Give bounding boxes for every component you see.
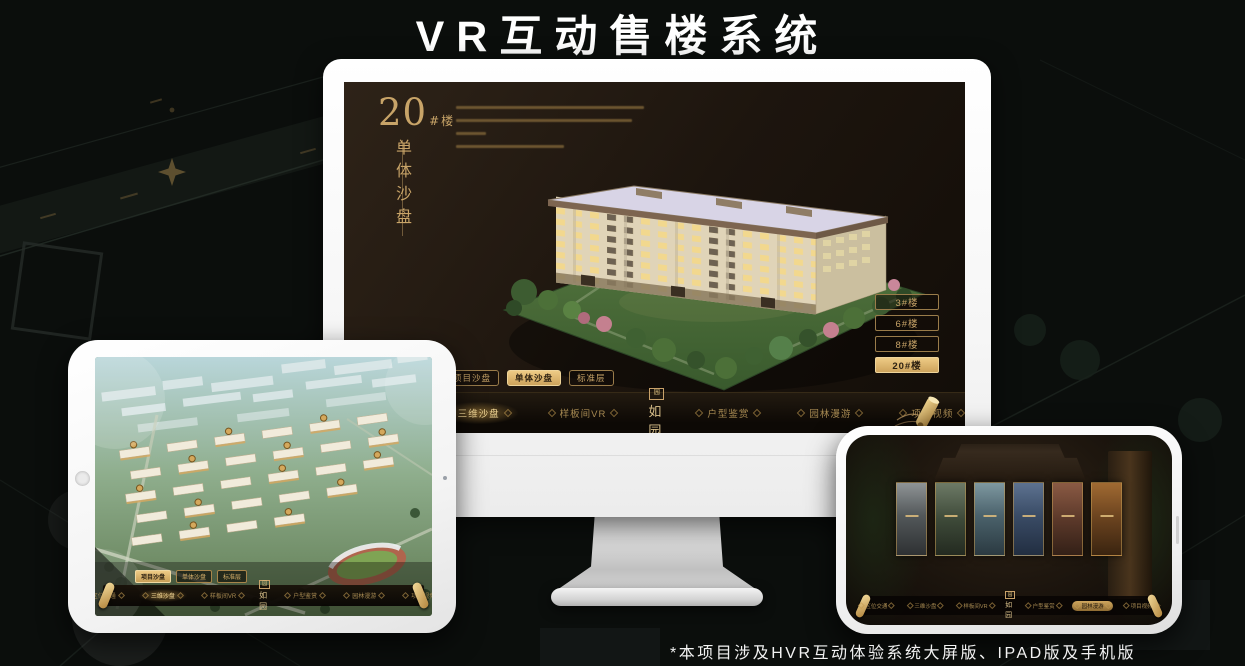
nav-label: 样板间VR bbox=[963, 602, 987, 610]
nav-label: 户型鉴赏 bbox=[1033, 602, 1055, 610]
panel-caption-mark bbox=[983, 515, 996, 517]
nav-item-showroom-vr[interactable]: 样板间VR bbox=[198, 589, 248, 602]
brand-logo: 园如园 bbox=[1005, 591, 1015, 620]
diamond-ornament-icon bbox=[118, 592, 125, 599]
nav-item-floorplans[interactable]: 户型鉴赏 bbox=[281, 589, 329, 602]
tablet-device: 项目沙盘 单体沙盘 标准层 区位交通 三维沙盘 样板间VR 园如园 户型鉴赏 园… bbox=[68, 340, 456, 633]
diamond-ornament-icon bbox=[177, 592, 184, 599]
diamond-ornament-icon bbox=[797, 409, 805, 417]
nav-item-showroom-vr[interactable]: 样板间VR bbox=[542, 402, 625, 424]
diamond-ornament-icon bbox=[957, 409, 965, 417]
diamond-ornament-icon bbox=[1123, 602, 1129, 608]
diamond-ornament-icon bbox=[989, 602, 995, 608]
poster: VR互动售楼系统 20#楼 单体沙盘 bbox=[0, 0, 1245, 666]
nav-item-garden-tour[interactable]: 园林漫游 bbox=[791, 402, 869, 424]
floor-button-8[interactable]: 8#楼 bbox=[875, 336, 939, 352]
logo-seal-icon: 园 bbox=[649, 388, 664, 400]
gate-silhouette bbox=[934, 439, 1086, 481]
scene-panel[interactable] bbox=[896, 482, 927, 556]
sandbox-subtabs: 项目沙盘 单体沙盘 标准层 bbox=[445, 370, 614, 386]
tablet-nav-overlay: 项目沙盘 单体沙盘 标准层 区位交通 三维沙盘 样板间VR 园如园 户型鉴赏 园… bbox=[103, 570, 424, 606]
panel-caption-mark bbox=[1061, 515, 1074, 517]
monitor-stand-neck bbox=[557, 511, 757, 595]
scene-panel[interactable] bbox=[1091, 482, 1122, 556]
diamond-ornament-icon bbox=[284, 592, 291, 599]
diamond-ornament-icon bbox=[695, 409, 703, 417]
description-text-line bbox=[456, 106, 644, 109]
phone-navbar: 区位交通 三维沙盘 样板间VR 园如园 户型鉴赏 园林漫游 项目视频 bbox=[862, 596, 1156, 615]
nav-item-showroom-vr[interactable]: 样板间VR bbox=[954, 601, 997, 611]
subtab-single-sandbox[interactable]: 单体沙盘 bbox=[176, 570, 212, 583]
diamond-ornament-icon bbox=[1074, 602, 1080, 608]
subtab-standard-floor[interactable]: 标准层 bbox=[217, 570, 247, 583]
nav-item-3d-sandbox[interactable]: 三维沙盘 bbox=[139, 589, 187, 602]
diamond-ornament-icon bbox=[201, 592, 208, 599]
description-text-line bbox=[456, 132, 486, 135]
panel-caption-mark bbox=[905, 515, 918, 517]
subtab-standard-floor[interactable]: 标准层 bbox=[569, 370, 614, 386]
nav-label: 户型鉴赏 bbox=[707, 406, 749, 420]
nav-item-floorplans[interactable]: 户型鉴赏 bbox=[1023, 601, 1064, 611]
description-text-line bbox=[456, 119, 632, 122]
brand-logo: 园如园 bbox=[259, 580, 270, 612]
diamond-ornament-icon bbox=[888, 602, 894, 608]
tablet-navbar: 区位交通 三维沙盘 样板间VR 园如园 户型鉴赏 园林漫游 项目视频 bbox=[103, 585, 424, 606]
floor-button-3[interactable]: 3#楼 bbox=[875, 294, 939, 310]
diamond-ornament-icon bbox=[238, 592, 245, 599]
brand-logo: 园如园 bbox=[648, 388, 665, 434]
diamond-ornament-icon bbox=[378, 592, 385, 599]
unit-suffix-text: #楼 bbox=[429, 114, 455, 128]
phone-device: 区位交通 三维沙盘 样板间VR 园如园 户型鉴赏 园林漫游 项目视频 bbox=[836, 426, 1182, 634]
logo-text: 如园 bbox=[648, 401, 665, 434]
nav-item-garden-tour[interactable]: 园林漫游 bbox=[1072, 601, 1113, 611]
footnote: *本项目涉及HVR互动体验系统大屏版、IPAD版及手机版 bbox=[670, 639, 1136, 663]
diamond-ornament-icon bbox=[907, 602, 913, 608]
nav-label: 三维沙盘 bbox=[151, 591, 175, 600]
diamond-ornament-icon bbox=[343, 592, 350, 599]
panel-caption-mark bbox=[944, 515, 957, 517]
nav-label: 三维沙盘 bbox=[914, 602, 936, 610]
unit-title-block: 20#楼 单体沙盘 bbox=[378, 94, 455, 249]
diamond-ornament-icon bbox=[319, 592, 326, 599]
nav-label: 三维沙盘 bbox=[458, 406, 500, 420]
diamond-ornament-icon bbox=[753, 409, 761, 417]
scene-panel[interactable] bbox=[974, 482, 1005, 556]
monitor-stand-base bbox=[551, 588, 763, 606]
camera-dot-icon bbox=[443, 476, 447, 480]
tablet-screen: 项目沙盘 单体沙盘 标准层 区位交通 三维沙盘 样板间VR 园如园 户型鉴赏 园… bbox=[95, 357, 432, 616]
diamond-ornament-icon bbox=[610, 409, 618, 417]
nav-label: 户型鉴赏 bbox=[293, 591, 317, 600]
logo-text: 如园 bbox=[1005, 600, 1015, 620]
diamond-ornament-icon bbox=[1105, 602, 1111, 608]
scene-panel[interactable] bbox=[1013, 482, 1044, 556]
nav-item-floorplans[interactable]: 户型鉴赏 bbox=[689, 402, 767, 424]
home-button[interactable] bbox=[75, 471, 90, 486]
nav-label: 园林漫游 bbox=[352, 591, 376, 600]
diamond-ornament-icon bbox=[503, 409, 511, 417]
diamond-ornament-icon bbox=[937, 602, 943, 608]
nav-item-garden-tour[interactable]: 园林漫游 bbox=[340, 589, 388, 602]
subtab-project-sandbox[interactable]: 项目沙盘 bbox=[135, 570, 171, 583]
page-title: VR互动售楼系统 bbox=[0, 2, 1245, 64]
nav-item-3d-sandbox[interactable]: 三维沙盘 bbox=[905, 601, 946, 611]
unit-number: 20#楼 bbox=[378, 94, 455, 131]
side-button bbox=[1176, 516, 1179, 544]
unit-number-text: 20 bbox=[378, 91, 427, 134]
panel-caption-mark bbox=[1022, 515, 1035, 517]
nav-label: 园林漫游 bbox=[1082, 602, 1104, 610]
nav-label: 样板间VR bbox=[210, 591, 236, 600]
nav-label: 样板间VR bbox=[560, 406, 607, 420]
floor-button-6[interactable]: 6#楼 bbox=[875, 315, 939, 331]
diamond-ornament-icon bbox=[956, 602, 962, 608]
diamond-ornament-icon bbox=[547, 409, 555, 417]
nav-label: 园林漫游 bbox=[809, 406, 851, 420]
diamond-ornament-icon bbox=[1056, 602, 1062, 608]
phone-screen: 区位交通 三维沙盘 样板间VR 园如园 户型鉴赏 园林漫游 项目视频 bbox=[846, 435, 1172, 625]
building-model-illustration bbox=[486, 142, 934, 394]
subtab-single-sandbox[interactable]: 单体沙盘 bbox=[507, 370, 561, 386]
diamond-ornament-icon bbox=[855, 409, 863, 417]
logo-seal-icon: 园 bbox=[1005, 591, 1015, 599]
logo-seal-icon: 园 bbox=[259, 580, 270, 589]
scene-panel[interactable] bbox=[935, 482, 966, 556]
logo-text: 如园 bbox=[259, 590, 270, 612]
diamond-ornament-icon bbox=[1025, 602, 1031, 608]
scene-panel[interactable] bbox=[1052, 482, 1083, 556]
tablet-subtabs: 项目沙盘 单体沙盘 标准层 bbox=[135, 570, 247, 583]
diamond-ornament-icon bbox=[142, 592, 149, 599]
diamond-ornament-icon bbox=[402, 592, 409, 599]
scene-gallery bbox=[896, 482, 1122, 556]
title-rule bbox=[402, 140, 403, 236]
panel-caption-mark bbox=[1100, 515, 1113, 517]
floor-button-20[interactable]: 20#楼 bbox=[875, 357, 939, 373]
floor-button-group: 3#楼 6#楼 8#楼 20#楼 bbox=[875, 294, 939, 373]
